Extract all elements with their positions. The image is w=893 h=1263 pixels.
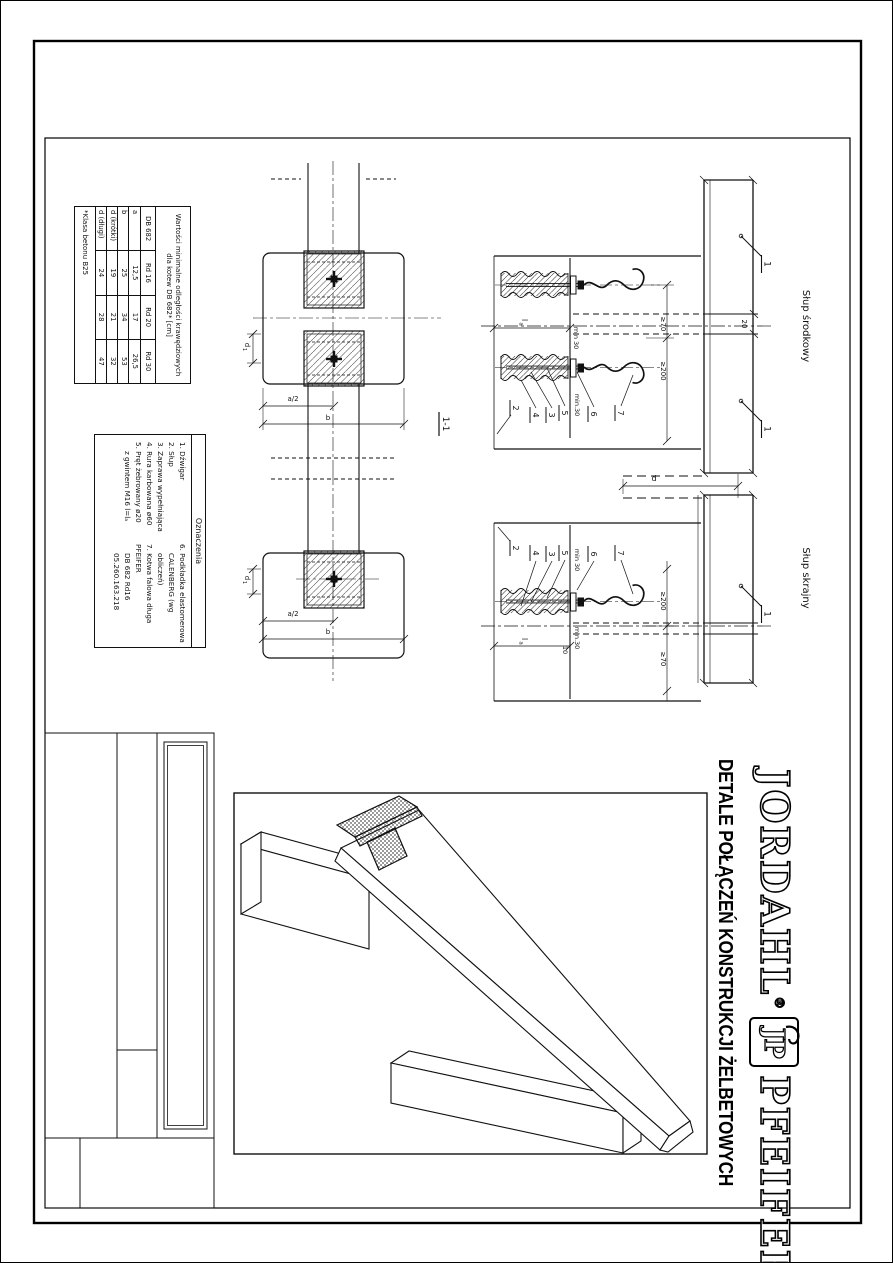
table-col-header: Rd 20 (140, 295, 155, 339)
callout-number: 4 (531, 412, 540, 417)
title-block-grid (45, 733, 214, 1208)
table-col-header: Rd 16 (140, 251, 155, 295)
dim-ge70: ≥70 (659, 317, 667, 332)
table-cell: 26,5 (129, 339, 140, 383)
dim-d1-sub: 1 (241, 581, 247, 584)
table-row-label: d (krótki) (107, 207, 118, 251)
legend-item: 4. Rura karbowana ø60 (144, 442, 155, 540)
dim-d1-sub: 1 (241, 348, 247, 351)
legend-title: Oznaczenia (191, 435, 205, 647)
section-title: 1-1 (440, 417, 450, 432)
section-marker (739, 234, 761, 623)
table-cell: 53 (118, 339, 129, 383)
edge-distance-table: Wartości minimalne odległości krawędziow… (74, 206, 191, 384)
table-cell: 21 (107, 295, 118, 339)
legend-item-continuation: DB 682 Rd16 (122, 544, 133, 644)
jordahl-wordmark: JORDAHL® (755, 769, 794, 1009)
callout-number: 6 (589, 411, 598, 416)
detail-edge-column-geometry (481, 474, 771, 701)
registered-mark-icon: ® (772, 996, 787, 1009)
isometric-sketch (234, 793, 707, 1154)
table-cell: 25 (118, 251, 129, 295)
dim-d1: d (243, 343, 251, 347)
table-cell: 32 (107, 339, 118, 383)
drawing-sheet-page: 1 1 1 Słup środkowy Słup skrajny 1-1 20 … (0, 0, 893, 1263)
table-row-label: a (129, 207, 140, 251)
legend-item: 6. Podkładka elastomerowa (177, 544, 188, 644)
legend-item: 1. Dźwigar (177, 442, 188, 540)
table-col-header: Rd 30 (140, 339, 155, 383)
section-marker-number: 1 (762, 426, 772, 432)
table-corner-cell: DB 682 (140, 207, 155, 251)
dim-la-sub: a (518, 322, 524, 325)
table-cell: 19 (107, 251, 118, 295)
brand-logo: JORDAHL® JP PFEIFER (745, 769, 803, 1189)
table-title: Wartości minimalne odległości krawędziow… (155, 207, 190, 384)
dim-joint-gap: 20 (740, 320, 748, 329)
anchor-hook-icon (785, 1023, 803, 1049)
callout-number: 7 (616, 410, 625, 415)
detail-title-edge-column: Słup skrajny (800, 547, 811, 608)
table-row: a 12,5 17 26,5 (129, 207, 140, 384)
legend-item: 3. Zaprawa wypełniająca (155, 442, 166, 540)
dim-d: d (651, 474, 656, 483)
table-row-label: b (118, 207, 129, 251)
legend-box: Oznaczenia 1. Dźwigar 2. Słup 3. Zaprawa… (94, 434, 206, 648)
callout-number: 3 (547, 551, 556, 556)
callout-number: 5 (560, 550, 569, 555)
table-row: b 25 34 53 (118, 207, 129, 384)
dim-la-sub: a (518, 641, 524, 644)
legend-item: 2. Słup (166, 442, 177, 540)
callout-number: 3 (547, 412, 556, 417)
sheet-landscape-canvas: 1 1 1 Słup środkowy Słup skrajny 1-1 20 … (1, 1, 893, 1263)
table-row-label: d (długi) (96, 207, 107, 251)
table-cell: 17 (129, 295, 140, 339)
legend-item: 5. Pręt żebrowany ø20 (133, 442, 144, 540)
callout-number: 5 (560, 410, 569, 415)
plan-edge-column-geometry (247, 458, 408, 681)
table-row: d (długi) 24 28 47 (96, 207, 107, 384)
table-row: d (krótki) 19 21 32 (107, 207, 118, 384)
legend-item: 7. Kotwa falowa długa PFEIFER (133, 544, 155, 644)
table-cell: 47 (96, 339, 107, 383)
callout-number: 2 (511, 545, 520, 550)
detail-middle-column-geometry (481, 176, 771, 477)
legend-item-continuation: CALENBERG (wg obliczeń) (155, 544, 177, 644)
table-footnote: *Klasa betonu B25 (75, 207, 96, 384)
callout-number: 2 (511, 405, 520, 410)
dim-la: l (520, 638, 529, 640)
callout-number: 7 (616, 550, 625, 555)
dim-a-half: a/2 (287, 395, 298, 403)
callout-number: 6 (589, 551, 598, 556)
dim-la: l (520, 319, 529, 321)
legend-left-column: 1. Dźwigar 2. Słup 3. Zaprawa wypełniają… (122, 442, 188, 540)
table-cell: 12,5 (129, 251, 140, 295)
table-cell: 24 (96, 251, 107, 295)
legend-right-column: 6. Podkładka elastomerowa CALENBERG (wg … (111, 544, 188, 644)
jp-monogram: JP (749, 1017, 799, 1067)
section-marker-number: 1 (762, 261, 772, 267)
dim-a-half: a/2 (287, 610, 298, 618)
legend-item-continuation: 05.260.163.218 (111, 544, 122, 644)
dim-min30: min 30 (573, 549, 581, 572)
dim-min30: min 30 (572, 327, 580, 350)
detail-title-middle-column: Słup środkowy (800, 290, 812, 362)
dim-b: b (326, 628, 331, 636)
pfeifer-wordmark: PFEIFER (755, 1075, 794, 1263)
dim-ge70: ≥70 (659, 652, 667, 667)
dim-d1: d (243, 576, 251, 580)
dim-ten: 10 (561, 646, 569, 654)
dim-b: b (326, 414, 331, 422)
dim-ge200: ≥200 (659, 591, 667, 610)
dim-ge200: ≥200 (659, 361, 667, 380)
dim-min30-dot: min.30 (573, 394, 581, 417)
dim-min30-dot: min.30 (573, 627, 581, 650)
plan-middle-column-geometry (247, 161, 441, 471)
sheet-title: DETALE POŁĄCZEŃ KONSTRUKCJI ŻELBETOWYCH (708, 759, 742, 1103)
section-marker-number: 1 (762, 611, 772, 617)
table-cell: 34 (118, 295, 129, 339)
legend-item-continuation: z gwintem M16 l=lₐ (122, 442, 133, 540)
callout-number: 4 (531, 550, 540, 555)
table-cell: 28 (96, 295, 107, 339)
